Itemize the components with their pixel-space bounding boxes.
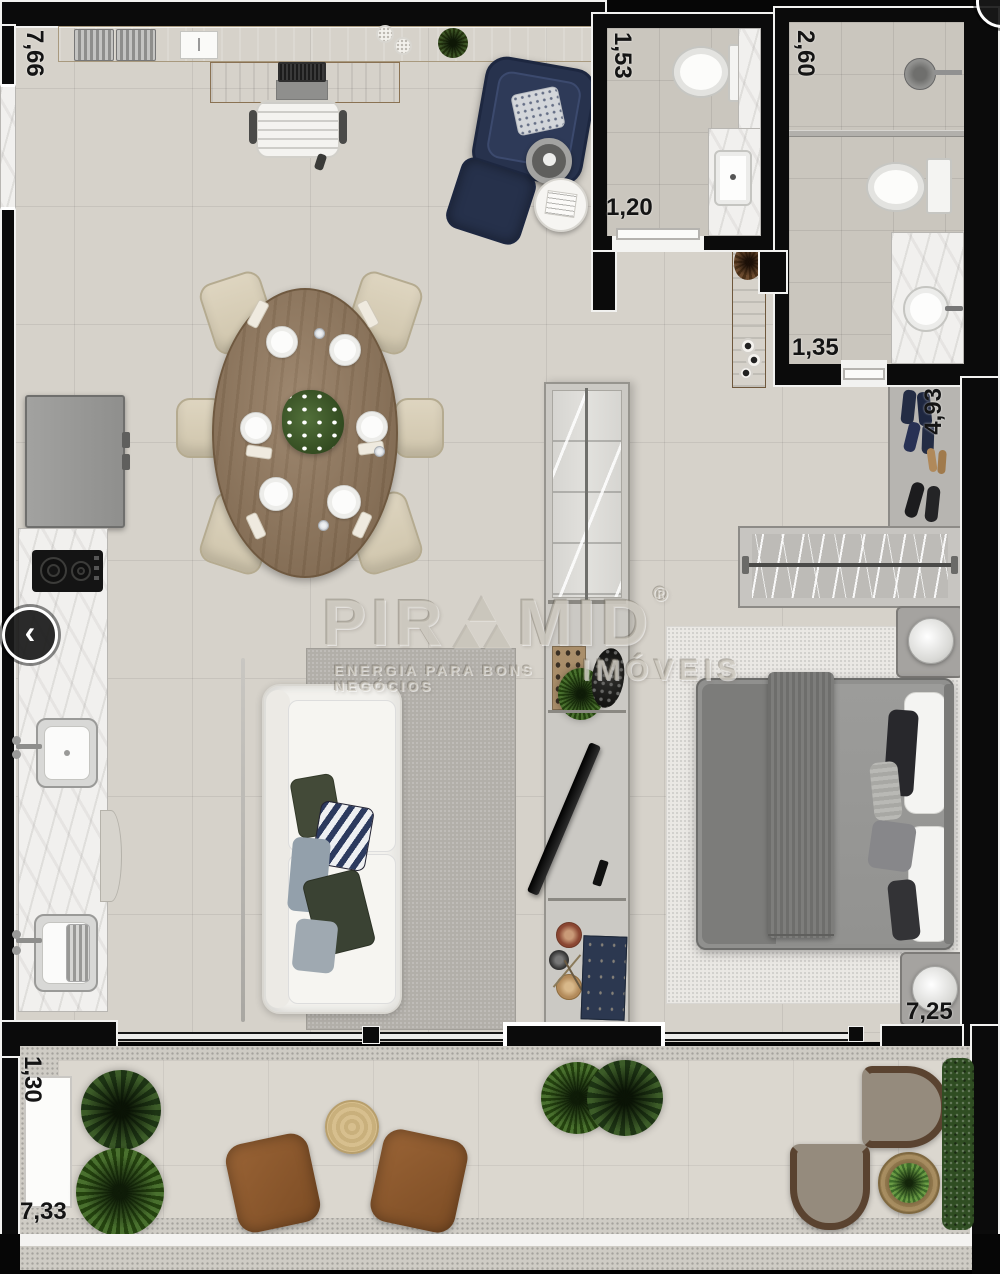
prev-arrow-icon: ‹: [25, 616, 36, 648]
decor-book: [581, 935, 628, 1020]
prev-arrow-button[interactable]: ‹: [2, 607, 58, 663]
wall-stub: [591, 250, 617, 312]
patio-armchair: [790, 1144, 870, 1230]
table-plant: [889, 1163, 929, 1203]
bath2-sliding-door: [843, 368, 885, 380]
washboard: [66, 924, 90, 982]
dim-hall-door: 1,35: [792, 336, 839, 360]
track-post: [848, 1026, 864, 1042]
toilet: [866, 162, 926, 212]
leather-pouf: [223, 1130, 324, 1235]
watermark-brand-prefix: PIR: [322, 584, 447, 660]
patio-armchair: [862, 1066, 948, 1148]
bath1-sliding-door: [616, 228, 700, 240]
dim-closet-length: 4,93: [922, 388, 946, 435]
pyramid-logo-icon: [451, 594, 513, 650]
jar: [376, 25, 394, 43]
shower-head: [904, 58, 936, 90]
right-wall: [960, 376, 1000, 1048]
potted-plant: [76, 1148, 164, 1236]
sandal: [937, 450, 947, 474]
balcony-railing: [20, 1234, 972, 1246]
plate: [356, 411, 388, 443]
table-lamp: [908, 618, 954, 664]
mouse-pad: [276, 80, 328, 100]
plate: [329, 334, 361, 366]
bath1-counter: [738, 28, 761, 130]
decor-ball: [543, 153, 556, 166]
balcony-right-wall: [970, 1024, 1000, 1236]
fridge-handle: [122, 454, 130, 470]
cabinet-mullion: [585, 388, 588, 600]
burner: [71, 561, 91, 581]
centerpiece-plant: [282, 390, 344, 454]
faucet-handle: [12, 946, 21, 955]
plate: [259, 477, 293, 511]
faucet-handle: [12, 930, 21, 939]
fridge-handle: [122, 432, 130, 448]
rod-end: [742, 556, 749, 574]
dim-balcony-width: 7,33: [20, 1200, 67, 1224]
watermark-brand-suffix: MID: [517, 584, 653, 660]
glass: [314, 328, 325, 339]
faucet-handle: [12, 736, 21, 745]
magazine: [544, 190, 577, 218]
rod-end: [951, 556, 958, 574]
bath2-sink: [903, 286, 949, 332]
switch-toggle: [198, 38, 200, 51]
left-window-sill: [0, 84, 16, 210]
top-wall: [0, 0, 607, 28]
sink-drain: [64, 750, 70, 756]
watermark: PIR MID ® ENERGIA PARA BONS NEGÓCIOS IMÓ…: [322, 584, 742, 694]
dim-bedroom-width: 7,25: [906, 1000, 953, 1024]
plate: [266, 326, 298, 358]
window-track: [665, 1032, 848, 1041]
dim-bath2-width: 2,60: [793, 30, 817, 77]
toilet: [672, 46, 730, 98]
office-chair: [256, 100, 340, 158]
shower-divider: [789, 130, 964, 137]
headboard: [944, 684, 954, 944]
jar: [394, 37, 412, 55]
faucet: [945, 306, 963, 311]
laptop: [278, 62, 326, 82]
watermark-division: IMÓVEIS: [582, 654, 742, 688]
decor-plate: [556, 922, 582, 948]
watermark-tagline: ENERGIA PARA BONS NEGÓCIOS: [334, 662, 556, 694]
corner-block: [0, 1234, 20, 1274]
knit-pillow: [869, 761, 903, 822]
door-swing: [100, 810, 122, 902]
sofa-back: [266, 690, 290, 1008]
sofa-pillow: [291, 918, 338, 974]
dim-balcony-depth: 1,30: [20, 1056, 44, 1103]
burner: [40, 557, 67, 584]
chair-armrest: [249, 110, 257, 144]
shower-arm: [934, 70, 962, 75]
shelf-divider: [548, 898, 626, 901]
bed-runner: [768, 672, 834, 938]
bowl: [739, 366, 753, 380]
dim-bath1-depth: 1,20: [606, 196, 653, 220]
floorplan-image: 7,66 1,53 1,20 2,60 1,35 4,93 7,25 1,30 …: [0, 0, 1000, 1274]
dish-rack: [116, 29, 156, 61]
dining-chair: [394, 398, 444, 458]
dim-top-width: 7,66: [22, 30, 46, 77]
potted-plant: [587, 1060, 663, 1136]
balcony-left-wall: [0, 1056, 20, 1246]
plate: [327, 485, 361, 519]
hedge: [942, 1058, 974, 1230]
clothes-rod: [746, 563, 954, 567]
cooktop-knobs: [94, 556, 99, 586]
dish-rack: [74, 29, 114, 61]
toilet-tank: [926, 158, 952, 214]
glass: [318, 520, 329, 531]
wall-stub: [758, 250, 788, 294]
coffee-table: [325, 1100, 379, 1154]
shelf-divider: [548, 710, 626, 713]
glass: [374, 446, 385, 457]
sink-drain: [730, 174, 736, 180]
window-track: [118, 1032, 366, 1041]
faucet: [16, 744, 42, 749]
railing-ledge: [0, 1246, 1000, 1270]
floor-lamp-pole: [241, 658, 245, 1022]
corner-block: [972, 1234, 1000, 1274]
faucet-handle: [12, 750, 21, 759]
plate: [240, 412, 272, 444]
refrigerator: [25, 395, 125, 528]
faucet: [16, 938, 42, 943]
throw-blanket: [867, 819, 917, 873]
dim-bath1-width: 1,53: [610, 32, 634, 79]
moss-plant: [438, 28, 468, 58]
runner-drape: [768, 934, 834, 962]
track-post: [362, 1026, 380, 1044]
watermark-registered: ®: [653, 584, 668, 607]
potted-plant: [81, 1070, 161, 1150]
bottom-edge: [0, 1270, 1000, 1274]
duvet-fold: [702, 684, 776, 944]
window-track: [380, 1032, 503, 1041]
chair-armrest: [339, 110, 347, 144]
